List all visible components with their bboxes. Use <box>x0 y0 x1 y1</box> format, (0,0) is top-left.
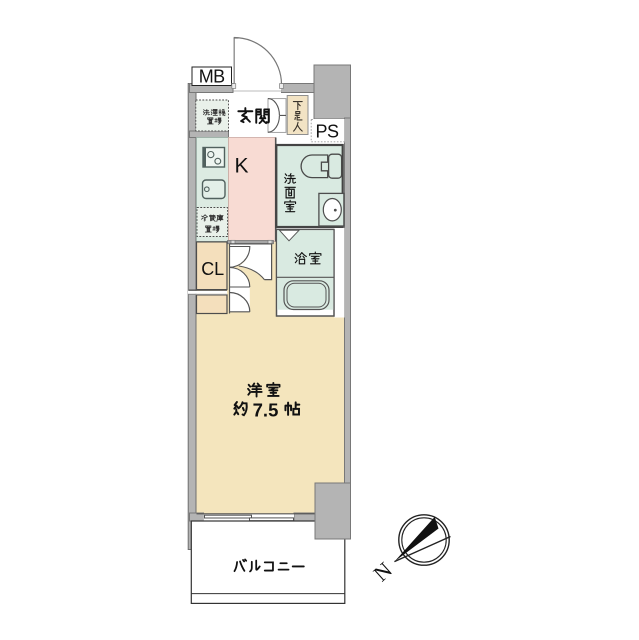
svg-text:K: K <box>234 154 248 177</box>
svg-text:PS: PS <box>315 121 339 141</box>
svg-text:7.5: 7.5 <box>253 399 279 420</box>
svg-text:MB: MB <box>199 67 225 87</box>
svg-text:CL: CL <box>201 259 224 279</box>
